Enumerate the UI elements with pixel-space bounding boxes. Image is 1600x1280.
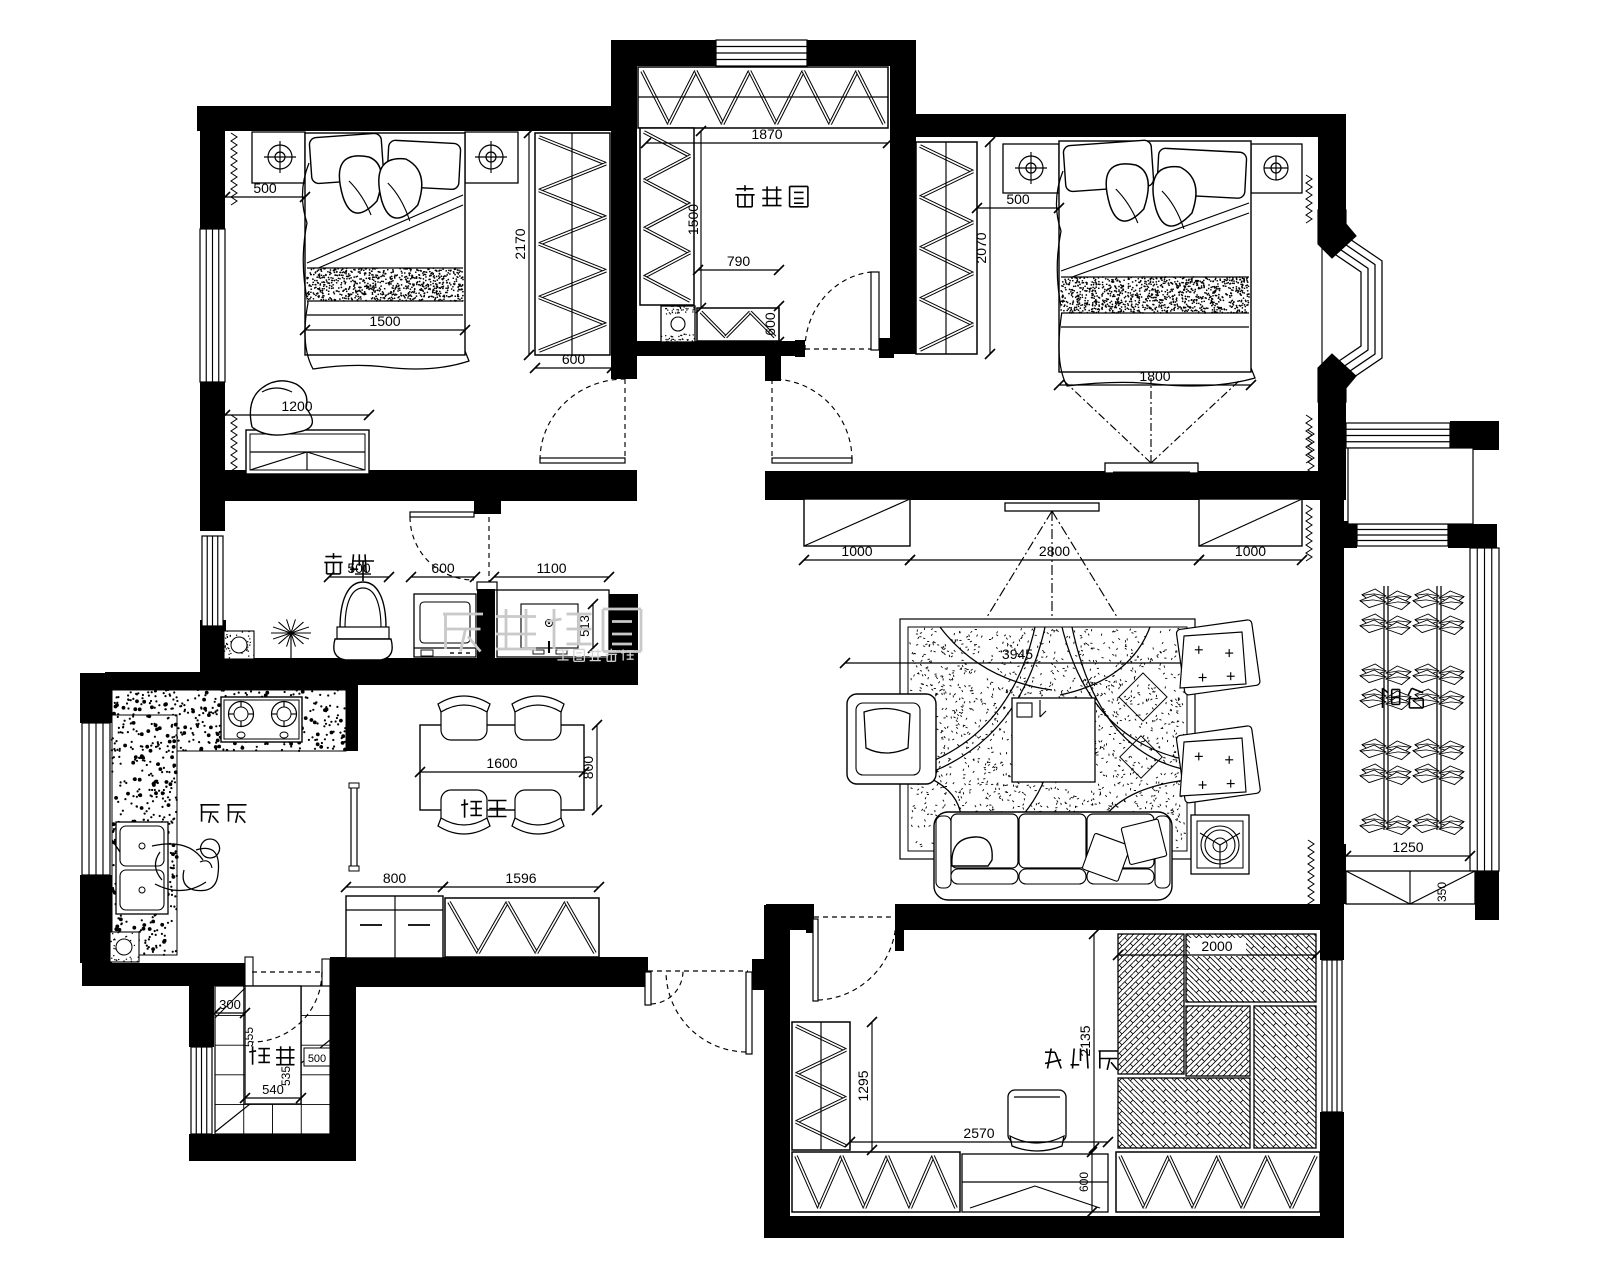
svg-text:1100: 1100 xyxy=(536,560,566,576)
svg-text:2800: 2800 xyxy=(1039,543,1070,559)
svg-text:1000: 1000 xyxy=(1235,543,1266,559)
svg-text:2070: 2070 xyxy=(973,232,989,263)
svg-text:500: 500 xyxy=(253,180,277,196)
svg-text:790: 790 xyxy=(727,253,751,269)
svg-text:300: 300 xyxy=(219,997,241,1012)
svg-text:1500: 1500 xyxy=(685,204,701,235)
svg-text:1600: 1600 xyxy=(486,755,517,771)
svg-text:500: 500 xyxy=(1006,191,1030,207)
svg-text:535: 535 xyxy=(279,1066,293,1086)
svg-text:500: 500 xyxy=(308,1053,326,1065)
svg-text:600: 600 xyxy=(762,312,778,336)
svg-text:1000: 1000 xyxy=(841,543,872,559)
svg-text:800: 800 xyxy=(383,870,407,886)
svg-text:800: 800 xyxy=(580,756,596,780)
svg-text:500: 500 xyxy=(347,560,371,576)
svg-text:1200: 1200 xyxy=(281,398,312,414)
svg-text:1500: 1500 xyxy=(369,313,400,329)
svg-text:600: 600 xyxy=(562,351,586,367)
svg-text:2170: 2170 xyxy=(512,228,528,259)
svg-text:1800: 1800 xyxy=(1139,368,1170,384)
svg-text:1596: 1596 xyxy=(505,870,536,886)
svg-text:1870: 1870 xyxy=(751,126,782,142)
svg-text:555: 555 xyxy=(242,1027,256,1047)
svg-text:600: 600 xyxy=(431,560,455,576)
